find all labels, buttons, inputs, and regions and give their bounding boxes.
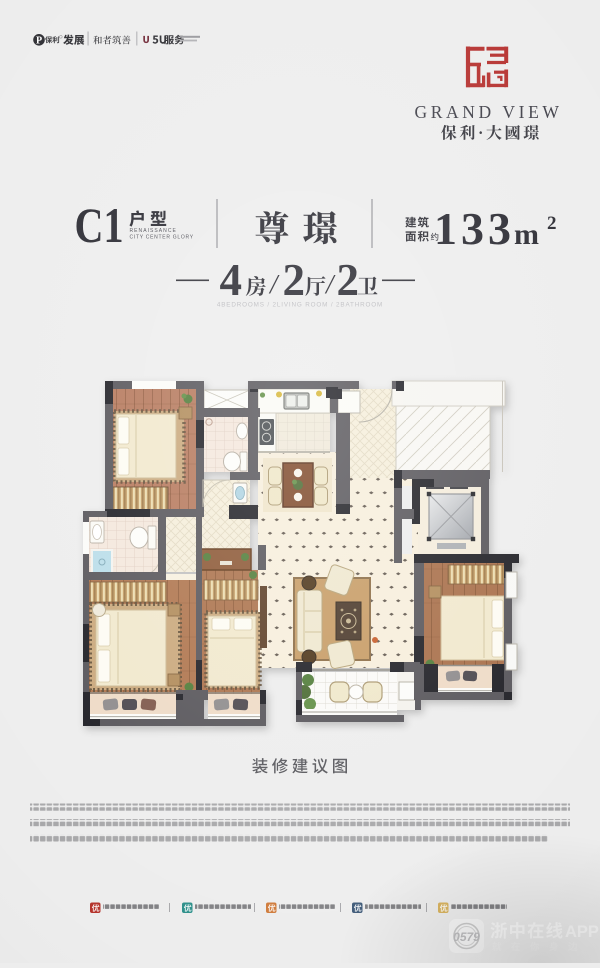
svg-text:RENAISSANCE: RENAISSANCE bbox=[130, 228, 177, 234]
svg-text:2: 2 bbox=[337, 255, 360, 305]
svg-text:4: 4 bbox=[220, 255, 243, 305]
svg-text:4BEDROOMS / 2LIVING ROOM / 2BA: 4BEDROOMS / 2LIVING ROOM / 2BATHROOM bbox=[217, 302, 383, 309]
svg-text:P: P bbox=[36, 36, 42, 47]
svg-text:C1: C1 bbox=[75, 197, 124, 253]
svg-text:CITY CENTER GLORY: CITY CENTER GLORY bbox=[130, 235, 194, 241]
svg-text:m: m bbox=[514, 218, 539, 251]
svg-text:0579: 0579 bbox=[453, 930, 480, 944]
svg-text:APP: APP bbox=[565, 923, 599, 941]
svg-text:2: 2 bbox=[283, 255, 306, 305]
svg-text:133: 133 bbox=[434, 203, 515, 254]
svg-text:2: 2 bbox=[547, 213, 557, 234]
svg-text:GRAND VIEW: GRAND VIEW bbox=[415, 102, 563, 122]
